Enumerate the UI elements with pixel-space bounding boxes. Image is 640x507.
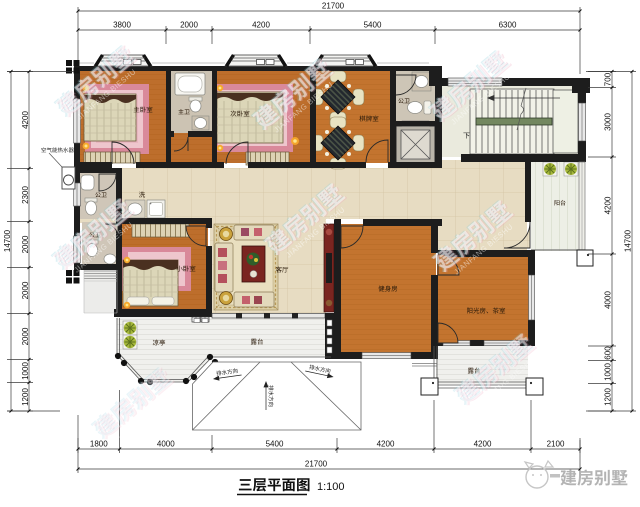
- svg-text:4000: 4000: [157, 440, 175, 449]
- svg-text:4200: 4200: [604, 196, 613, 214]
- svg-text:700: 700: [604, 72, 613, 86]
- svg-text:600: 600: [604, 346, 613, 360]
- svg-text:4000: 4000: [604, 291, 613, 309]
- svg-text:5400: 5400: [266, 440, 284, 449]
- svg-text:3800: 3800: [113, 21, 131, 30]
- svg-text:1000: 1000: [604, 363, 613, 381]
- svg-text:3000: 3000: [604, 113, 613, 131]
- svg-text:4200: 4200: [474, 440, 492, 449]
- svg-text:6300: 6300: [499, 21, 517, 30]
- svg-text:2000: 2000: [21, 235, 30, 253]
- svg-text:2300: 2300: [21, 186, 30, 204]
- svg-text:1000: 1000: [21, 362, 30, 380]
- svg-text:1200: 1200: [21, 388, 30, 406]
- svg-text:2100: 2100: [547, 440, 565, 449]
- svg-text:21700: 21700: [322, 2, 345, 11]
- svg-text:2000: 2000: [180, 21, 198, 30]
- svg-text:4200: 4200: [252, 21, 270, 30]
- svg-text:2000: 2000: [21, 327, 30, 345]
- svg-text:2000: 2000: [21, 281, 30, 299]
- svg-text:4200: 4200: [377, 440, 395, 449]
- svg-text:1800: 1800: [90, 440, 108, 449]
- svg-text:14700: 14700: [624, 229, 633, 252]
- svg-text:4200: 4200: [21, 111, 30, 129]
- svg-text:14700: 14700: [3, 229, 12, 252]
- svg-text:5400: 5400: [364, 21, 382, 30]
- svg-text:21700: 21700: [305, 460, 328, 469]
- svg-text:1:100: 1:100: [317, 481, 345, 493]
- svg-text:1200: 1200: [604, 388, 613, 406]
